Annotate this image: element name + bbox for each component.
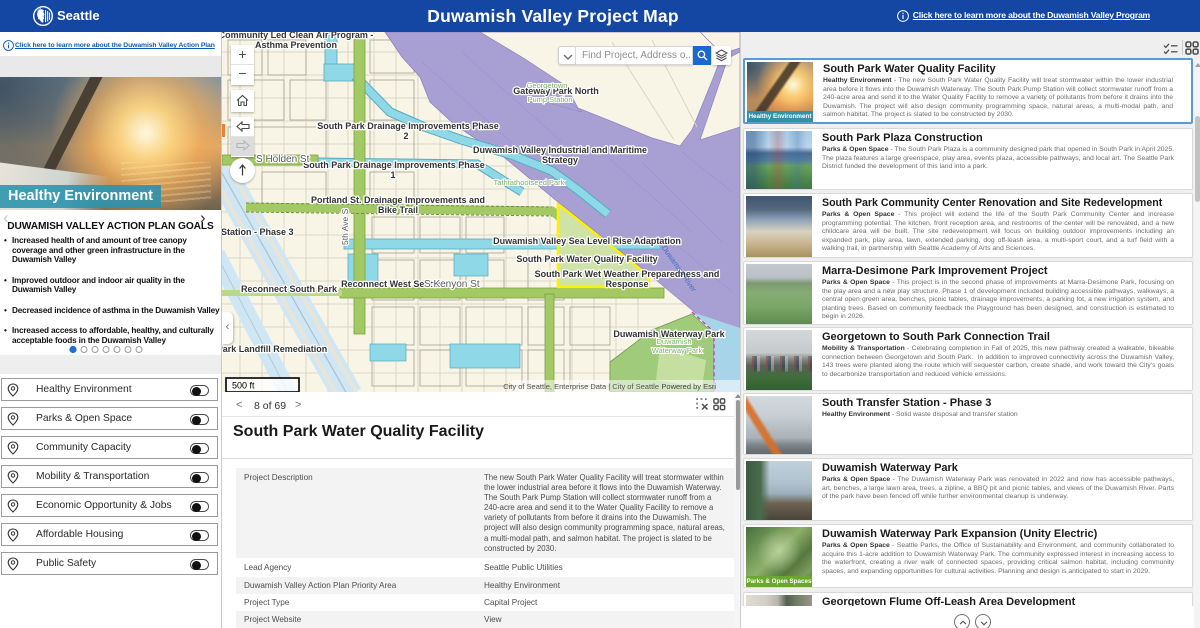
svg-text:Asthma Prevention: Asthma Prevention: [255, 40, 337, 50]
svg-text:Duwamish: Duwamish: [656, 337, 691, 346]
svg-text:Response: Response: [605, 279, 648, 289]
svg-text:S Holden St: S Holden St: [256, 154, 310, 165]
svg-text:Waterway Park: Waterway Park: [652, 346, 703, 355]
svg-text:Park Landfill Remediation: Park Landfill Remediation: [222, 344, 327, 354]
svg-text:Portland St. Drainage Improvem: Portland St. Drainage Improvements and: [311, 195, 485, 205]
svg-text:City of Seattle, Enterprise Da: City of Seattle, Enterprise Data | City …: [503, 382, 659, 391]
svg-text:500 ft: 500 ft: [232, 381, 255, 391]
svg-text:Strategy: Strategy: [542, 155, 578, 165]
svg-text:Tathtathootseed Park: Tathtathootseed Park: [494, 178, 565, 187]
svg-text:S Kenyon St: S Kenyon St: [424, 279, 480, 290]
svg-text:South Park Drainage Improvemen: South Park Drainage Improvements Phase: [317, 121, 499, 131]
svg-text:1: 1: [390, 170, 395, 180]
svg-text:5th Ave S: 5th Ave S: [340, 208, 350, 245]
svg-text:Pump Station: Pump Station: [527, 95, 572, 104]
svg-text:Community Led Clean Air Progra: Community Led Clean Air Program -: [222, 32, 373, 40]
svg-text:Powered by Esri: Powered by Esri: [661, 382, 716, 391]
svg-text:Bike Trail: Bike Trail: [378, 205, 418, 215]
svg-text:South Park Drainage Improvemen: South Park Drainage Improvements Phase: [303, 160, 485, 170]
svg-text:South Park Water Quality Facil: South Park Water Quality Facility: [516, 254, 657, 264]
svg-text:2: 2: [403, 131, 408, 141]
svg-text:Reconnect South Park: Reconnect South Park: [241, 284, 338, 294]
svg-text:Duwamish Valley Sea Level Rise: Duwamish Valley Sea Level Rise Adaptatio…: [493, 236, 681, 246]
svg-text:Georgetown: Georgetown: [527, 81, 568, 90]
svg-text:Station - Phase 3: Station - Phase 3: [222, 227, 294, 237]
svg-text:Duwamish Valley Industrial and: Duwamish Valley Industrial and Maritime: [473, 145, 647, 155]
